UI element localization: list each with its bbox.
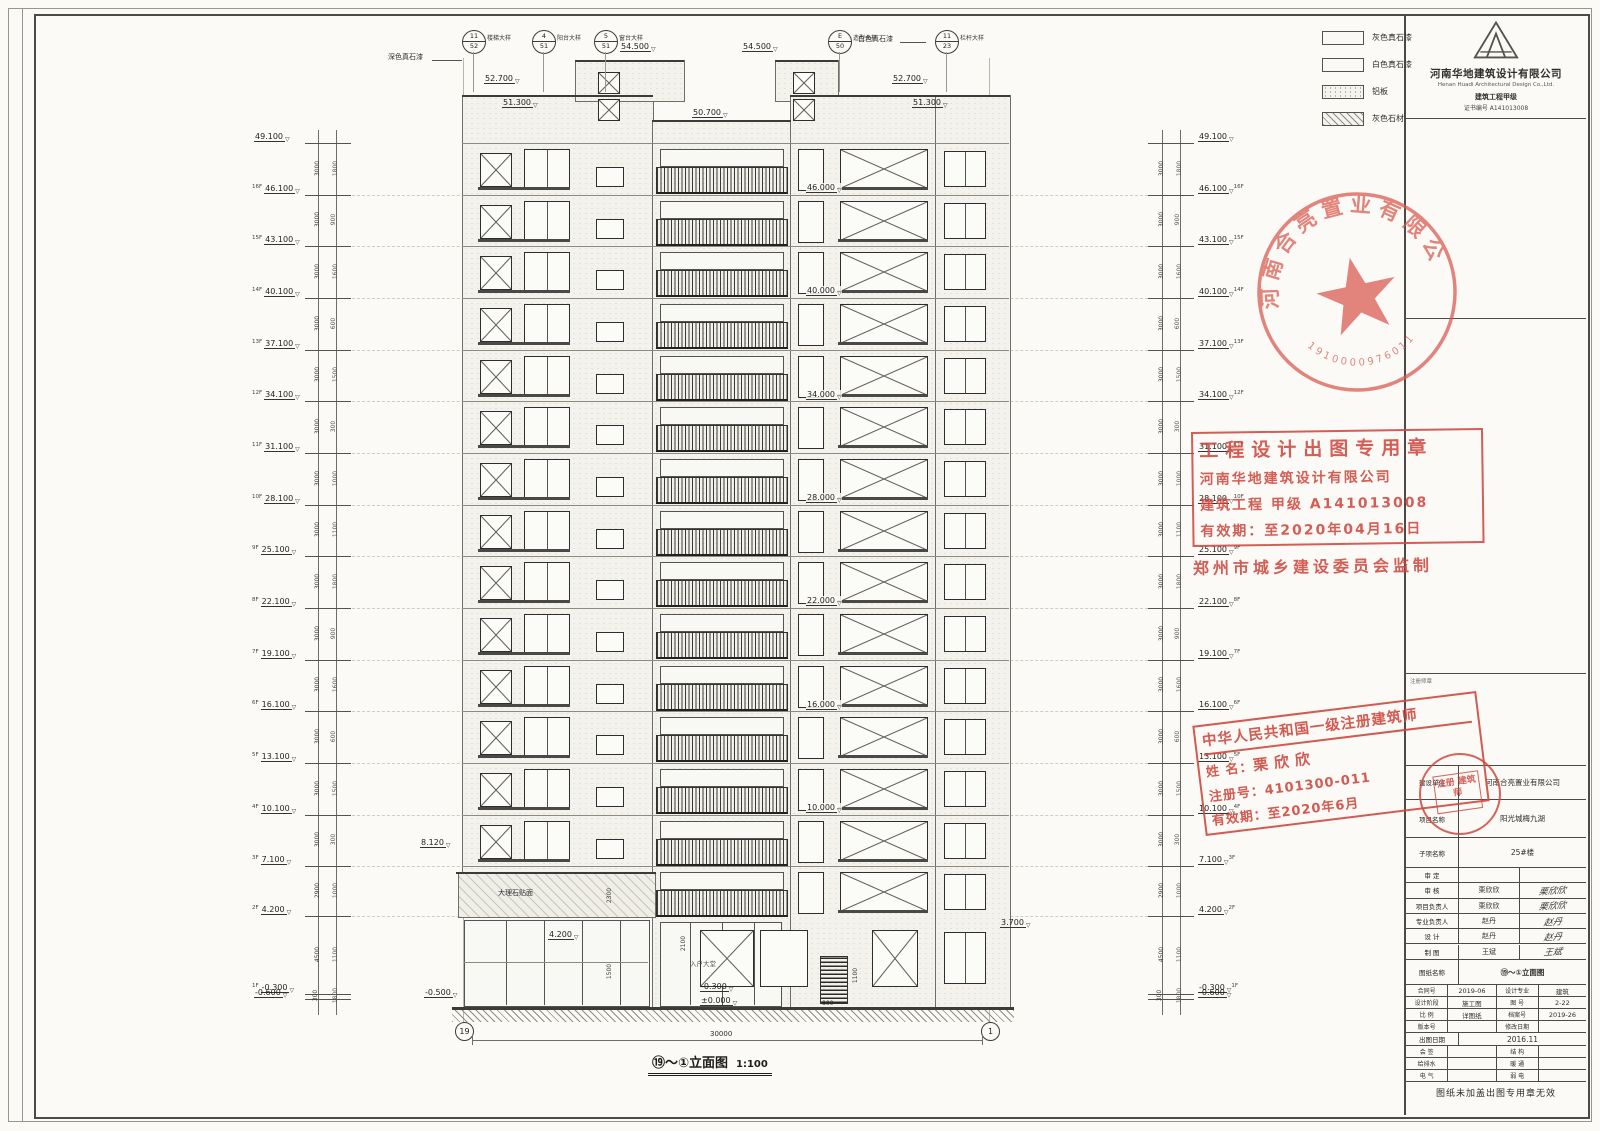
window-sill bbox=[478, 497, 570, 500]
storey-dim: 3000 bbox=[1158, 574, 1165, 589]
level-tick bbox=[305, 660, 351, 661]
window bbox=[944, 616, 986, 652]
level-value: 28.000 bbox=[806, 493, 837, 503]
level-value: -0.500 bbox=[424, 988, 453, 998]
floor-tag: 12F bbox=[1234, 390, 1244, 396]
level-triangle-icon: ▽ bbox=[837, 497, 842, 504]
level-tick bbox=[1148, 143, 1194, 144]
large-window bbox=[840, 769, 928, 809]
company-grade: 建筑工程甲级 bbox=[1406, 92, 1586, 102]
storey-dim: 3000 bbox=[314, 264, 321, 279]
storey-dim: 4500 bbox=[314, 947, 321, 962]
level-tick bbox=[1148, 815, 1194, 816]
cosign-row: 电 气弱 电 bbox=[1406, 1070, 1586, 1082]
floor-slab-line bbox=[462, 143, 1009, 144]
floor-tag: 7F bbox=[1234, 649, 1241, 655]
window bbox=[524, 201, 570, 241]
level-tick bbox=[1148, 994, 1194, 995]
level-triangle-icon: ▽ bbox=[1224, 909, 1229, 916]
level-triangle-icon: ▽ bbox=[1229, 136, 1234, 143]
storefront-transom bbox=[464, 962, 648, 963]
level-tick bbox=[305, 246, 351, 247]
level-tick bbox=[305, 195, 351, 196]
roof-level-mark: 52.700▽ bbox=[484, 74, 520, 83]
level-triangle-icon: ▽ bbox=[651, 46, 656, 53]
window bbox=[480, 773, 512, 807]
caption-title: ⑲～①立面图 bbox=[652, 1056, 728, 1071]
balcony-railing bbox=[656, 167, 788, 194]
info-label: 比 例 bbox=[1406, 1009, 1448, 1020]
base-level-mark: -0.300▽ bbox=[700, 982, 733, 991]
leader-line bbox=[432, 60, 462, 61]
level-tick bbox=[1148, 660, 1194, 661]
window bbox=[944, 668, 986, 704]
level-triangle-icon: ▽ bbox=[446, 842, 451, 849]
stair-level-mark: 10.000▽ bbox=[806, 803, 842, 812]
cosign-value bbox=[1448, 1046, 1496, 1057]
storey-dim: 3000 bbox=[314, 212, 321, 227]
permit-grade: 建筑工程 甲级 A141013008 bbox=[1200, 491, 1476, 515]
signature-scribble: 王斌 bbox=[1543, 945, 1563, 959]
window bbox=[480, 566, 512, 600]
level-mark: 37.100▽13F bbox=[1198, 339, 1246, 348]
floor-slab-line bbox=[462, 195, 1009, 196]
callout-sheet-number: 50 bbox=[829, 42, 851, 51]
storey-dim: 300 bbox=[1156, 990, 1163, 1001]
storey-dim: 3000 bbox=[314, 161, 321, 176]
level-tick bbox=[1148, 556, 1194, 557]
level-triangle-icon: ▽ bbox=[295, 394, 300, 401]
sub-dim: 1800 bbox=[332, 161, 339, 176]
level-triangle-icon: ▽ bbox=[292, 549, 297, 556]
louver-dim: 800 bbox=[822, 1000, 833, 1007]
level-value: -0.600 bbox=[254, 988, 283, 998]
storey-dim: 3000 bbox=[1158, 419, 1165, 434]
info-row: 比 例详图纸档案号2019-26 bbox=[1406, 1009, 1586, 1021]
floor-slab-line bbox=[462, 556, 1009, 557]
floor-slab-line bbox=[462, 505, 1009, 506]
stair-window bbox=[596, 322, 624, 342]
level-triangle-icon: ▽ bbox=[453, 992, 458, 999]
balcony-railing bbox=[656, 684, 788, 711]
drawing-sheet: 49.100▽16F46.100▽3000180015F43.100▽30009… bbox=[0, 0, 1600, 1131]
window-sill bbox=[838, 549, 928, 552]
stair-window bbox=[596, 839, 624, 859]
sign-label: 设 计 bbox=[1406, 929, 1459, 943]
balcony-railing bbox=[656, 787, 788, 814]
large-window bbox=[840, 562, 928, 602]
design-permit-stamp: 工程设计出图专用章 河南华地建筑设计有限公司 建筑工程 甲级 A14101300… bbox=[1191, 428, 1485, 579]
level-triangle-icon: ▽ bbox=[1229, 291, 1234, 298]
sub-dim: 900 bbox=[1174, 628, 1181, 639]
storey-dim: 3000 bbox=[314, 471, 321, 486]
signature-row: 制 图王斌王斌 bbox=[1406, 945, 1586, 960]
level-mark: 9F25.100▽ bbox=[252, 545, 296, 554]
level-value: 25.100 bbox=[261, 545, 292, 555]
level-triangle-icon: ▽ bbox=[837, 807, 842, 814]
legend-label: 铝板 bbox=[1372, 86, 1388, 97]
level-value: 7.100 bbox=[261, 855, 287, 865]
caption-scale: 1:100 bbox=[736, 1059, 768, 1070]
level-mark: 7F19.100▽ bbox=[252, 649, 296, 658]
sub-dim: 300 bbox=[1174, 834, 1181, 845]
sign-signature: 栗欣欣 bbox=[1520, 899, 1586, 913]
level-mark: 13F37.100▽ bbox=[252, 339, 300, 348]
storey-dim: 300 bbox=[312, 990, 319, 1001]
level-tick bbox=[1148, 298, 1194, 299]
balcony-door-glass bbox=[660, 356, 784, 374]
level-value: 34.100 bbox=[264, 390, 295, 400]
level-triangle-icon: ▽ bbox=[773, 46, 778, 53]
level-value: 28.100 bbox=[264, 494, 295, 504]
sub-dim: 1500 bbox=[1176, 367, 1183, 382]
level-mark: 5F13.100▽ bbox=[252, 752, 296, 761]
roof-vent bbox=[793, 99, 815, 121]
level-mark: 19.100▽7F bbox=[1198, 649, 1242, 658]
sign-signature bbox=[1520, 868, 1586, 882]
detail-callout: 551 bbox=[594, 30, 618, 54]
legend-swatch-hatch bbox=[1322, 112, 1364, 126]
tall-window bbox=[798, 821, 824, 863]
window bbox=[480, 256, 512, 290]
info-value: 建筑 bbox=[1539, 985, 1586, 996]
sign-name: 赵丹 bbox=[1459, 929, 1520, 943]
level-triangle-icon: ▽ bbox=[292, 756, 297, 763]
level-value: 16.100 bbox=[1198, 700, 1229, 710]
sub-dim: 600 bbox=[1174, 318, 1181, 329]
level-value: ±0.000 bbox=[700, 996, 733, 1006]
large-window bbox=[840, 201, 928, 241]
window bbox=[944, 461, 986, 497]
window-sill bbox=[838, 755, 928, 758]
date-value: 2016.11 bbox=[1459, 1033, 1586, 1045]
info-row: 合同号2019-06设计专业建筑 bbox=[1406, 985, 1586, 997]
floor-tag: 8F bbox=[1234, 597, 1241, 603]
level-tick bbox=[305, 815, 351, 816]
window bbox=[944, 203, 986, 239]
level-value: 49.100 bbox=[1198, 132, 1229, 142]
floor-tag: 8F bbox=[252, 597, 259, 603]
vent-louver bbox=[820, 956, 848, 1004]
cosign-row: 会 签结 构 bbox=[1406, 1046, 1586, 1058]
drawing-name-label: 图纸名称 bbox=[1406, 960, 1459, 984]
storey-dim: 3000 bbox=[1158, 729, 1165, 744]
floor-tag: 12F bbox=[252, 390, 262, 396]
cosign-row: 给排水暖 通 bbox=[1406, 1058, 1586, 1070]
large-window bbox=[840, 149, 928, 189]
callout-leader bbox=[839, 52, 840, 92]
level-triangle-icon: ▽ bbox=[1229, 239, 1234, 246]
window bbox=[480, 411, 512, 445]
level-value: 8.120 bbox=[420, 838, 446, 848]
roof-vent bbox=[598, 99, 620, 121]
floor-tag: 16F bbox=[252, 184, 262, 190]
window-sill bbox=[838, 290, 928, 293]
level-value: 16.100 bbox=[261, 700, 292, 710]
sub-dim: 1800 bbox=[332, 574, 339, 589]
level-tick bbox=[1148, 246, 1194, 247]
architect-valid-label: 有效期： bbox=[1211, 807, 1268, 829]
storey-dim: 3000 bbox=[1158, 161, 1165, 176]
window-sill bbox=[478, 239, 570, 242]
level-triangle-icon: ▽ bbox=[837, 394, 842, 401]
level-triangle-icon: ▽ bbox=[515, 78, 520, 85]
level-mark: 16.100▽6F bbox=[1198, 700, 1242, 709]
level-value: 13.100 bbox=[261, 752, 292, 762]
balcony-railing bbox=[656, 839, 788, 866]
storey-dim: 3000 bbox=[314, 574, 321, 589]
balcony-railing bbox=[656, 735, 788, 762]
info-row: 设计阶段施工图图 号2-22 bbox=[1406, 997, 1586, 1009]
balcony-door-glass bbox=[660, 614, 784, 632]
detail-callout: 1123 bbox=[935, 30, 959, 54]
podium-dim: 2300 bbox=[606, 888, 613, 903]
sign-label: 审 定 bbox=[1406, 868, 1459, 882]
sub-dim: 900 bbox=[330, 628, 337, 639]
stair-window bbox=[596, 167, 624, 187]
level-tick bbox=[305, 866, 351, 867]
window bbox=[944, 409, 986, 445]
level-tick bbox=[305, 916, 351, 917]
storey-dim: 3000 bbox=[314, 316, 321, 331]
balcony-railing bbox=[656, 270, 788, 297]
parapet-cap bbox=[935, 95, 1010, 97]
level-triangle-icon: ▽ bbox=[1227, 992, 1232, 999]
balcony-door-glass bbox=[660, 459, 784, 477]
large-window bbox=[840, 304, 928, 344]
window-sill bbox=[838, 497, 928, 500]
level-triangle-icon: ▽ bbox=[295, 343, 300, 350]
callout-label: 窗台大样 bbox=[619, 33, 643, 42]
sub-dim: 1000 bbox=[1176, 883, 1183, 898]
window-sill bbox=[478, 859, 570, 862]
callout-sheet-number: 51 bbox=[595, 42, 617, 51]
permit-company: 河南华地建筑设计有限公司 bbox=[1200, 465, 1476, 489]
large-window bbox=[840, 407, 928, 447]
level-value: 37.100 bbox=[1198, 339, 1229, 349]
mid-level-mark: 3.700▽ bbox=[1000, 918, 1031, 927]
info-value: 2-22 bbox=[1539, 997, 1586, 1008]
detail-callout: 451 bbox=[532, 30, 556, 54]
podium-level-mark: 4.200▽ bbox=[548, 930, 579, 939]
level-triangle-icon: ▽ bbox=[733, 1000, 738, 1007]
louver-dim: 1100 bbox=[852, 968, 859, 983]
floor-tag: 14F bbox=[252, 287, 262, 293]
level-tick bbox=[1148, 505, 1194, 506]
large-window bbox=[840, 614, 928, 654]
window-sill bbox=[478, 652, 570, 655]
storey-dim: 3000 bbox=[314, 729, 321, 744]
floor-tag: 9F bbox=[252, 545, 259, 551]
level-mark: 34.100▽12F bbox=[1198, 390, 1246, 399]
overall-dim-line bbox=[472, 1040, 982, 1041]
material-note: 大理石贴面 bbox=[498, 888, 533, 898]
level-triangle-icon: ▽ bbox=[292, 808, 297, 815]
balcony-railing bbox=[656, 219, 788, 246]
legend-swatch-plain bbox=[1322, 58, 1364, 72]
level-triangle-icon: ▽ bbox=[1229, 394, 1234, 401]
storey-dim: 3000 bbox=[314, 419, 321, 434]
level-tick bbox=[305, 711, 351, 712]
level-value: 16.000 bbox=[806, 700, 837, 710]
subproject-value: 25#楼 bbox=[1459, 838, 1586, 867]
info-value bbox=[1448, 1021, 1496, 1032]
cosign-value bbox=[1448, 1058, 1496, 1069]
floor-tag: 3F bbox=[252, 855, 259, 861]
window bbox=[524, 821, 570, 861]
stair-level-mark: 46.000▽ bbox=[806, 183, 842, 192]
info-label: 档案号 bbox=[1497, 1009, 1539, 1020]
stair-window bbox=[596, 219, 624, 239]
info-label: 设计专业 bbox=[1497, 985, 1539, 996]
sub-dim: 1800 bbox=[1176, 574, 1183, 589]
level-triangle-icon: ▽ bbox=[295, 291, 300, 298]
level-mark: 49.100▽ bbox=[1198, 132, 1236, 141]
company-name-en: Henan Huadi Architectural Design Co.,Ltd… bbox=[1406, 82, 1586, 88]
callout-detail-number: 11 bbox=[463, 31, 485, 42]
balcony-door-glass bbox=[660, 769, 784, 787]
signature-scribble: 栗欣欣 bbox=[1538, 898, 1567, 913]
dim-tick bbox=[472, 1035, 473, 1045]
level-tick bbox=[305, 350, 351, 351]
stair-level-mark: 28.000▽ bbox=[806, 493, 842, 502]
storey-dim: 3000 bbox=[1158, 781, 1165, 796]
floor-tag: 6F bbox=[1234, 700, 1241, 706]
large-window bbox=[840, 459, 928, 499]
window bbox=[480, 360, 512, 394]
level-value: 46.100 bbox=[1198, 184, 1229, 194]
info-value: 2019-06 bbox=[1448, 985, 1496, 996]
level-value: -0.600 bbox=[1198, 988, 1227, 998]
window bbox=[524, 407, 570, 447]
tower2-cap bbox=[775, 60, 838, 62]
sign-label: 专业负责人 bbox=[1406, 914, 1459, 928]
window-dim: 2100 bbox=[680, 936, 687, 951]
signature-row: 专业负责人赵丹赵丹 bbox=[1406, 914, 1586, 929]
level-triangle-icon: ▽ bbox=[723, 112, 728, 119]
sub-dim: 1000 bbox=[332, 471, 339, 486]
level-value: 4.200 bbox=[261, 905, 287, 915]
floor-tag: 13F bbox=[252, 339, 262, 345]
level-value: 10.100 bbox=[261, 804, 292, 814]
callout-label: 栏杆大样 bbox=[960, 33, 984, 42]
window bbox=[524, 459, 570, 499]
storey-dim: 3000 bbox=[314, 626, 321, 641]
roof-level-mark: 51.300▽ bbox=[912, 98, 948, 107]
podium-stone-band bbox=[458, 873, 656, 918]
level-triangle-icon: ▽ bbox=[729, 986, 734, 993]
level-mark: 14F40.100▽ bbox=[252, 287, 300, 296]
sub-dim: 1000 bbox=[332, 883, 339, 898]
window-sill bbox=[478, 807, 570, 810]
balcony-railing bbox=[656, 477, 788, 504]
info-value: 施工图 bbox=[1448, 997, 1496, 1008]
floor-slab-line bbox=[462, 866, 1009, 867]
floor-slab-line bbox=[462, 763, 1009, 764]
level-tick bbox=[1148, 453, 1194, 454]
level-triangle-icon: ▽ bbox=[1229, 343, 1234, 350]
ground-window bbox=[760, 930, 808, 987]
callout-label: 楼梯大样 bbox=[487, 33, 511, 42]
level-triangle-icon: ▽ bbox=[287, 859, 292, 866]
dim-tick bbox=[982, 1035, 983, 1045]
level-value: 46.100 bbox=[264, 184, 295, 194]
storey-dim: 3000 bbox=[1158, 316, 1165, 331]
large-window bbox=[840, 356, 928, 396]
cosign-value bbox=[1448, 1070, 1496, 1081]
sub-dim: 600 bbox=[330, 318, 337, 329]
balcony-railing bbox=[656, 580, 788, 607]
level-mark: 7.100▽3F bbox=[1198, 855, 1237, 864]
level-triangle-icon: ▽ bbox=[1026, 922, 1031, 929]
callout-detail-number: 5 bbox=[595, 31, 617, 42]
sub-dim: 300 bbox=[330, 421, 337, 432]
floor-tag: 10F bbox=[252, 494, 262, 500]
large-window bbox=[840, 666, 928, 706]
window-sill bbox=[838, 807, 928, 810]
architect-name: 栗欣欣 bbox=[1252, 749, 1317, 775]
architect-name-label: 姓 名： bbox=[1205, 760, 1254, 781]
storey-dim: 2900 bbox=[1158, 883, 1165, 898]
level-value: 40.100 bbox=[1198, 287, 1229, 297]
level-value: 4.200 bbox=[548, 930, 574, 940]
level-triangle-icon: ▽ bbox=[837, 704, 842, 711]
storey-dim: 3000 bbox=[1158, 677, 1165, 692]
callout-sheet-number: 23 bbox=[936, 42, 958, 51]
permit-title: 工程设计出图专用章 bbox=[1199, 432, 1475, 463]
window-sill bbox=[838, 445, 928, 448]
level-tick bbox=[1148, 916, 1194, 917]
storey-dim: 3000 bbox=[314, 367, 321, 382]
sub-dim: 1600 bbox=[1176, 264, 1183, 279]
sub-dim: 1600 bbox=[332, 264, 339, 279]
window bbox=[480, 721, 512, 755]
level-value: 7.100 bbox=[1198, 855, 1224, 865]
floor-tag: 6F bbox=[252, 700, 259, 706]
level-mark: 3F7.100▽ bbox=[252, 855, 291, 864]
level-tick bbox=[1148, 195, 1194, 196]
balcony-door-glass bbox=[660, 562, 784, 580]
drawing-caption: ⑲～①立面图1:100 bbox=[648, 1052, 772, 1076]
tall-window bbox=[798, 614, 824, 656]
mid-level-mark: 8.120▽ bbox=[420, 838, 451, 847]
window-sill bbox=[478, 394, 570, 397]
level-mark: 8F22.100▽ bbox=[252, 597, 296, 606]
storey-dim: 3000 bbox=[1158, 471, 1165, 486]
sub-dim: 1100 bbox=[1176, 522, 1183, 537]
level-triangle-icon: ▽ bbox=[574, 934, 579, 941]
callout-leader bbox=[946, 52, 947, 92]
level-value: 34.100 bbox=[1198, 390, 1229, 400]
large-window bbox=[840, 717, 928, 757]
cosign-value bbox=[1539, 1058, 1586, 1069]
level-value: -0.300 bbox=[700, 982, 729, 992]
storey-dim: 3000 bbox=[1158, 522, 1165, 537]
legend-swatch-plain bbox=[1322, 31, 1364, 45]
floor-tag: 2F bbox=[252, 905, 259, 911]
level-value: 34.000 bbox=[806, 390, 837, 400]
floor-tag: 5F bbox=[252, 752, 259, 758]
callout-detail-number: E bbox=[829, 31, 851, 42]
level-mark: 16F46.100▽ bbox=[252, 184, 300, 193]
window bbox=[480, 618, 512, 652]
level-tick bbox=[305, 298, 351, 299]
balcony-door-glass bbox=[660, 252, 784, 270]
parapet-cap bbox=[652, 120, 791, 122]
signature-row: 审 核栗欣欣栗欣欣 bbox=[1406, 883, 1586, 898]
storey-dim: 3000 bbox=[314, 677, 321, 692]
level-tick bbox=[1148, 608, 1194, 609]
